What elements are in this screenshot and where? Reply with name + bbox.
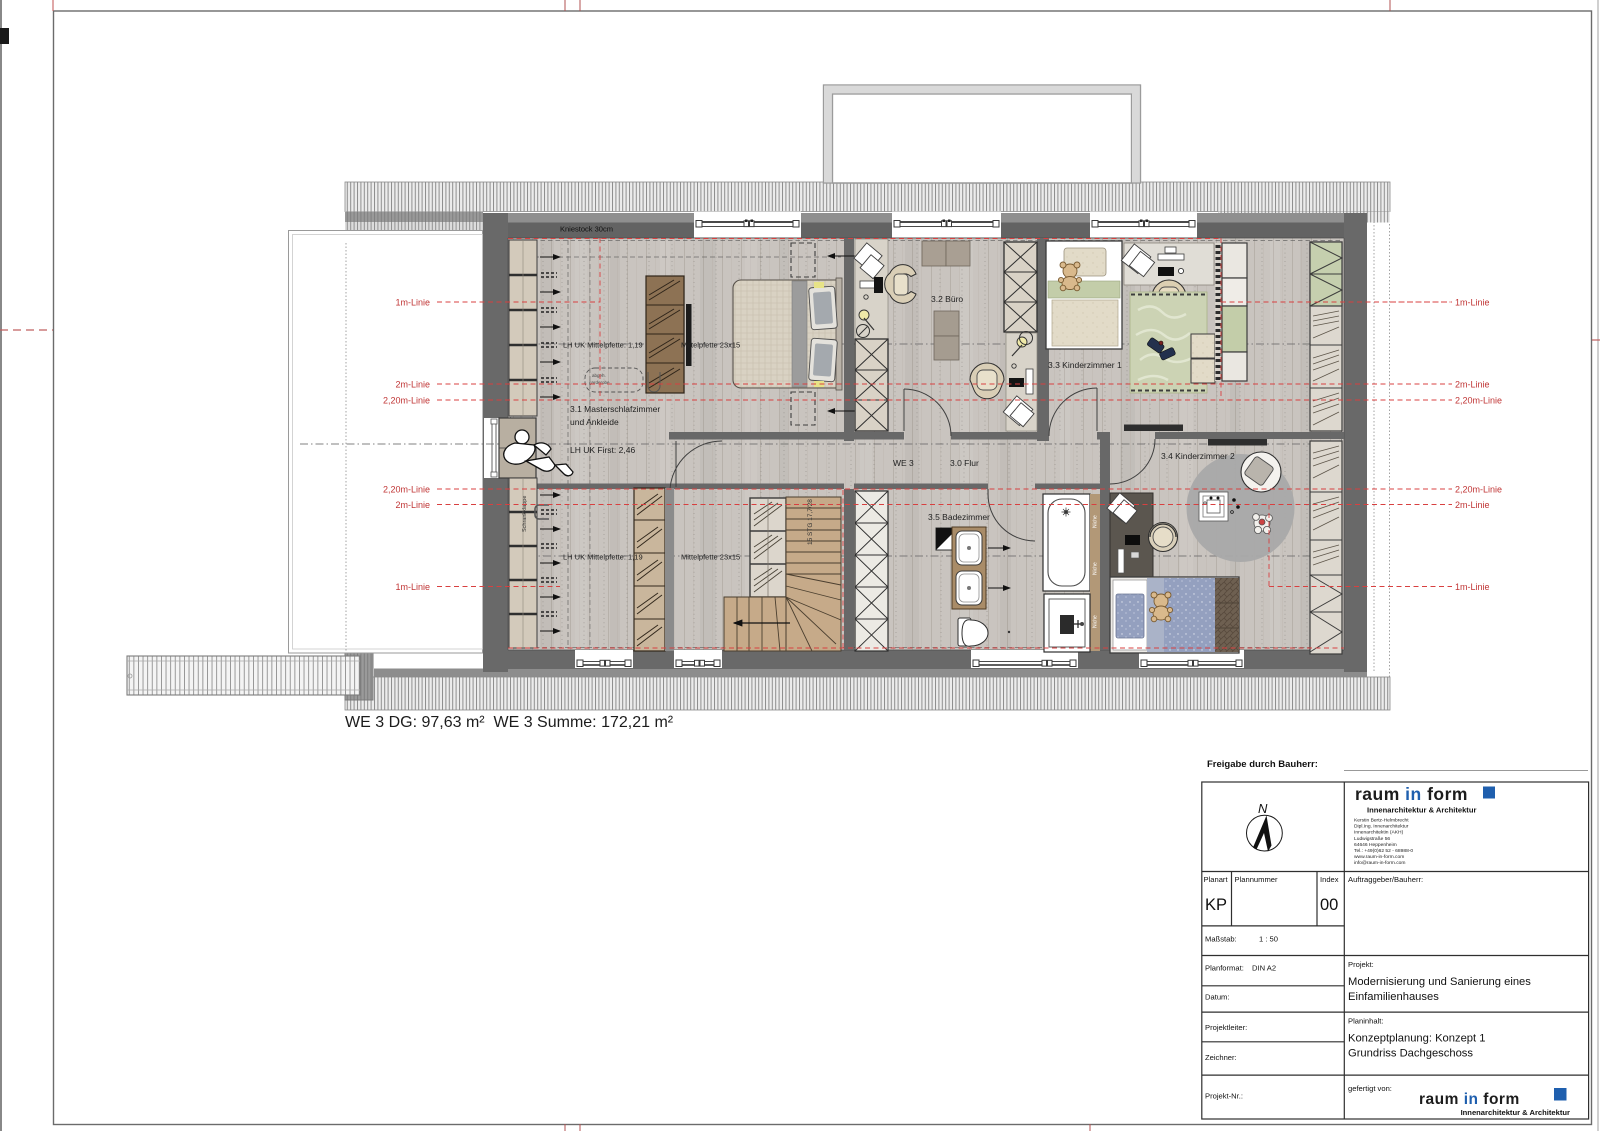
svg-text:Mittelpfette 23x15: Mittelpfette 23x15 — [681, 341, 740, 350]
svg-text:LH UK Mittelpfette: 1,19: LH UK Mittelpfette: 1,19 — [563, 341, 643, 350]
svg-text:3.5 Badezimmer: 3.5 Badezimmer — [928, 512, 990, 522]
svg-text:Kniestock 30cm: Kniestock 30cm — [560, 225, 613, 234]
svg-text:2,20m-Linie: 2,20m-Linie — [1455, 485, 1502, 495]
svg-text:1m-Linie: 1m-Linie — [395, 298, 430, 308]
svg-text:1m-Linie: 1m-Linie — [1455, 582, 1490, 592]
svg-text:Projektleiter:: Projektleiter: — [1205, 1023, 1247, 1032]
svg-text:Innenarchitektur & Architektur: Innenarchitektur & Architektur — [1367, 806, 1476, 815]
svg-text:raum in form: raum in form — [1355, 784, 1468, 804]
svg-text:raum in form: raum in form — [1419, 1091, 1520, 1108]
svg-text:Maßstab:: Maßstab: — [1205, 935, 1237, 944]
svg-text:Index: Index — [1320, 875, 1339, 884]
svg-text:3.4 Kinderzimmer 2: 3.4 Kinderzimmer 2 — [1161, 451, 1235, 461]
svg-text:WE 3: WE 3 — [893, 458, 914, 468]
svg-text:1m-Linie: 1m-Linie — [1455, 298, 1490, 308]
svg-text:3.3 Kinderzimmer 1: 3.3 Kinderzimmer 1 — [1048, 360, 1122, 370]
svg-text:WE 3 DG: 97,63 m² WE 3 Summe:: WE 3 DG: 97,63 m² WE 3 Summe: 172,21 m² — [345, 714, 674, 731]
svg-text:2m-Linie: 2m-Linie — [1455, 500, 1490, 510]
svg-text:2m-Linie: 2m-Linie — [1455, 380, 1490, 390]
svg-text:00: 00 — [1320, 896, 1338, 914]
svg-text:Projekt-Nr.:: Projekt-Nr.: — [1205, 1092, 1243, 1101]
svg-text:Einfamilienhauses: Einfamilienhauses — [1348, 991, 1439, 1003]
svg-text:Freigabe durch Bauherr:: Freigabe durch Bauherr: — [1207, 759, 1318, 770]
svg-text:Planart: Planart — [1204, 875, 1229, 884]
svg-text:LH UK First: 2,46: LH UK First: 2,46 — [570, 445, 635, 455]
svg-text:Dipl.Ing. Innenarchitektur: Dipl.Ing. Innenarchitektur — [1354, 824, 1409, 830]
svg-text:gefertigt von:: gefertigt von: — [1348, 1084, 1392, 1093]
svg-text:3.1 Masterschlafzimmer: 3.1 Masterschlafzimmer — [570, 404, 660, 414]
svg-text:Grundriss Dachgeschoss: Grundriss Dachgeschoss — [1348, 1048, 1473, 1060]
svg-text:und Ankleide: und Ankleide — [570, 417, 619, 427]
svg-text:3.2 Büro: 3.2 Büro — [931, 294, 963, 304]
svg-text:N: N — [1258, 801, 1268, 816]
svg-text:Planformat:: Planformat: — [1205, 964, 1244, 973]
svg-text:www.raum-in-form.com: www.raum-in-form.com — [1354, 854, 1404, 860]
svg-text:Plannummer: Plannummer — [1235, 875, 1279, 884]
svg-text:Niche: Niche — [1093, 615, 1099, 628]
svg-text:Auftraggeber/Bauherr:: Auftraggeber/Bauherr: — [1348, 875, 1423, 884]
svg-text:DIN A2: DIN A2 — [1252, 964, 1276, 973]
svg-text:Niche: Niche — [1093, 562, 1099, 575]
svg-text:Kerstin Bertz-Helmbrecht: Kerstin Bertz-Helmbrecht — [1354, 818, 1409, 824]
svg-text:Projekt:: Projekt: — [1348, 960, 1374, 969]
svg-text:Tel.: +49(0)62 52 - 68988-0: Tel.: +49(0)62 52 - 68988-0 — [1354, 848, 1413, 854]
svg-text:2m-Linie: 2m-Linie — [395, 380, 430, 390]
svg-text:1m-Linie: 1m-Linie — [395, 582, 430, 592]
svg-text:1 : 50: 1 : 50 — [1259, 935, 1278, 944]
svg-text:2,20m-Linie: 2,20m-Linie — [383, 485, 430, 495]
svg-text:Innenarchitektur & Architektur: Innenarchitektur & Architektur — [1461, 1108, 1570, 1117]
svg-text:2m-Linie: 2m-Linie — [395, 500, 430, 510]
svg-text:Mittelpfette 23x15: Mittelpfette 23x15 — [681, 553, 740, 562]
svg-text:15 STG 17,7/28: 15 STG 17,7/28 — [807, 499, 814, 545]
svg-text:abgeh.: abgeh. — [592, 373, 606, 378]
svg-text:2,20m-Linie: 2,20m-Linie — [1455, 396, 1502, 406]
svg-text:Innenarchitektin (AKH): Innenarchitektin (AKH) — [1354, 830, 1404, 836]
svg-text:Zeichner:: Zeichner: — [1205, 1053, 1237, 1062]
svg-text:Niche: Niche — [1093, 515, 1099, 528]
svg-text:Ludwigstraße 56: Ludwigstraße 56 — [1354, 836, 1390, 842]
svg-text:64646 Heppenheim: 64646 Heppenheim — [1354, 842, 1397, 848]
svg-text:Modernisierung und Sanierung e: Modernisierung und Sanierung eines — [1348, 976, 1531, 988]
svg-text:Planinhalt:: Planinhalt: — [1348, 1017, 1383, 1026]
svg-text:info@raum-in-form.com: info@raum-in-form.com — [1354, 860, 1405, 866]
svg-text:LH UK Mittelpfette: 1,19: LH UK Mittelpfette: 1,19 — [563, 553, 643, 562]
svg-text:3.0 Flur: 3.0 Flur — [950, 458, 979, 468]
svg-text:Datum:: Datum: — [1205, 993, 1229, 1002]
svg-text:2,20m-Linie: 2,20m-Linie — [383, 396, 430, 406]
svg-text:KP: KP — [1205, 896, 1227, 914]
svg-text:Konzeptplanung: Konzept 1: Konzeptplanung: Konzept 1 — [1348, 1033, 1485, 1045]
svg-text:Schrankklappe: Schrankklappe — [522, 496, 528, 532]
